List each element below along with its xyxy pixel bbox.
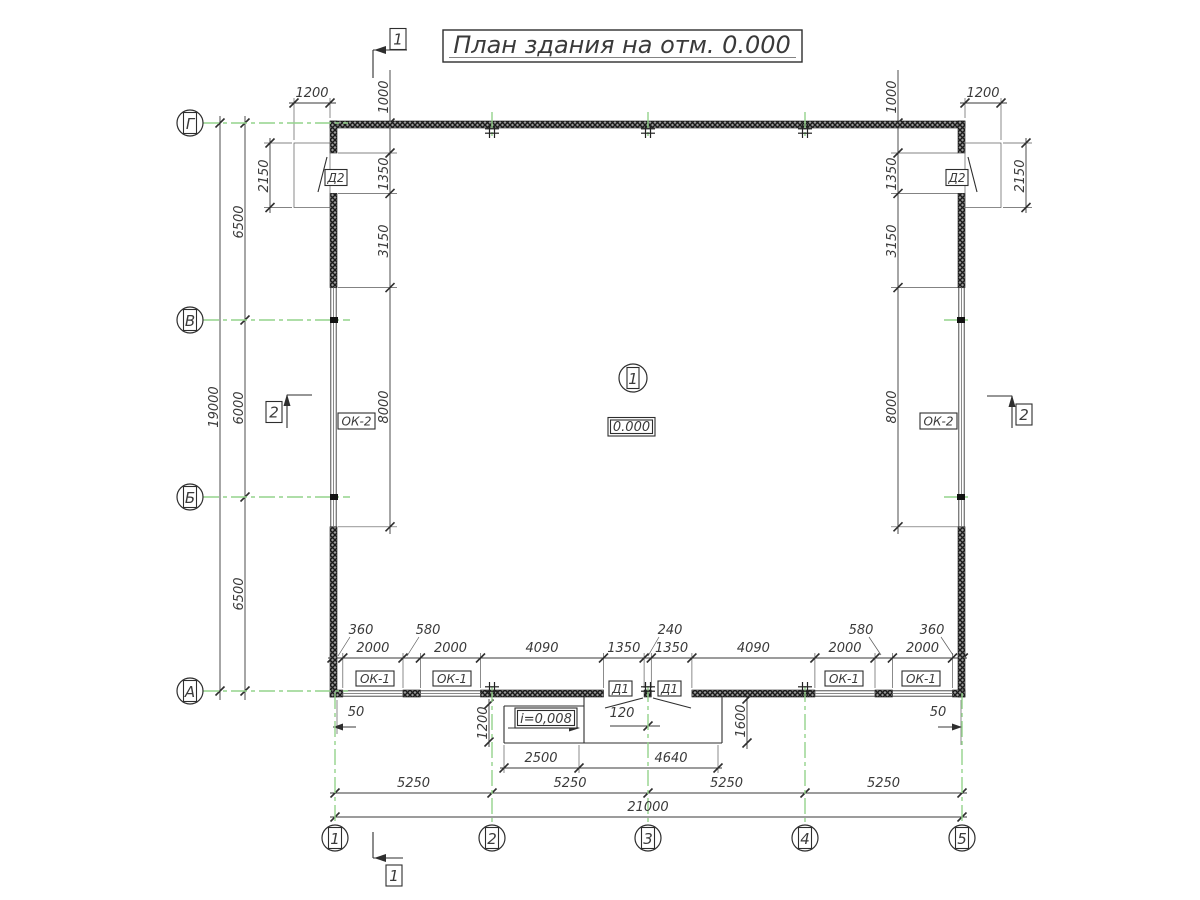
- door-tag: Д2: [326, 171, 344, 185]
- door-tag: Д2: [947, 171, 965, 185]
- building-walls: [330, 121, 965, 697]
- axis-grid: [203, 112, 968, 825]
- axis-letter: Б: [185, 489, 195, 507]
- dim-label: 8000: [377, 390, 392, 423]
- dim-label: 1200: [966, 86, 999, 101]
- dim-label: 2150: [257, 159, 272, 192]
- axis-bubble-col: 2: [479, 825, 505, 851]
- section-mark-2-right: 2: [987, 395, 1032, 428]
- axis-bubble-col: 1: [322, 825, 348, 851]
- axis-letter: В: [185, 312, 195, 330]
- dim-label: 2500: [524, 751, 557, 766]
- dim-label: 1000: [885, 80, 900, 113]
- dim-label: 50: [348, 705, 365, 720]
- column-marks: [330, 124, 965, 696]
- room-number: 1: [628, 370, 638, 388]
- window-tag: ОК-1: [829, 672, 859, 686]
- dim-label: 3150: [377, 224, 392, 257]
- dim-label: 3150: [885, 224, 900, 257]
- axis-bubble-row: Г: [177, 110, 203, 136]
- dim-label: 5250: [553, 776, 586, 791]
- dim-label: 1000: [377, 80, 392, 113]
- component-labels: ОК-2 ОК-2 ОК-1 ОК-1 ОК-1 ОК-1 Д2 Д2 Д1 Д…: [325, 170, 968, 729]
- axis-bubbles: Г В Б А 1 2 3 4 5: [177, 110, 975, 851]
- dim-label: 4090: [525, 641, 558, 656]
- dim-label: 240: [658, 623, 683, 638]
- dim-label: 5250: [397, 776, 430, 791]
- section-mark-2-left: 2: [266, 394, 312, 428]
- axis-bubble-col: 3: [635, 825, 661, 851]
- axis-number: 5: [957, 830, 967, 848]
- dim-label: 1600: [734, 704, 749, 737]
- floor-plan-canvas: 1200 1200 2150 2150 1000 1350 3150 8000 …: [0, 0, 1200, 900]
- dim-label: 4640: [654, 751, 687, 766]
- section-label: 2: [269, 404, 279, 422]
- dim-label: 1350: [885, 157, 900, 190]
- window-tag: ОК-1: [906, 672, 936, 686]
- dim-label: 5250: [710, 776, 743, 791]
- window-tag: ОК-2: [924, 415, 954, 429]
- axis-number: 3: [643, 830, 653, 848]
- dim-label: 6500: [232, 577, 247, 610]
- section-marks: 1 1 2 2: [266, 29, 1032, 887]
- elevation-mark: 0.000: [613, 420, 650, 435]
- section-label: 1: [393, 31, 403, 49]
- axis-bubble-col: 4: [792, 825, 818, 851]
- dim-label: 2000: [906, 641, 939, 656]
- door-tag: Д1: [660, 682, 678, 696]
- dim-label: 50: [930, 705, 947, 720]
- dim-label: 2000: [434, 641, 467, 656]
- dim-label: 2000: [828, 641, 861, 656]
- slope-label: i=0,008: [520, 712, 572, 727]
- axis-bubble-row: Б: [177, 484, 203, 510]
- door-tag: Д1: [611, 682, 629, 696]
- dim-label: 1350: [607, 641, 640, 656]
- axis-number: 1: [330, 830, 340, 848]
- dim-label: 360: [920, 623, 945, 638]
- dim-label: 6500: [232, 205, 247, 238]
- room-marker: 1 0.000: [608, 364, 655, 436]
- dim-label: 8000: [885, 390, 900, 423]
- dim-label: 580: [416, 623, 441, 638]
- dim-label: 1350: [655, 641, 688, 656]
- drawing-title: План здания на отм. 0.000: [453, 31, 791, 59]
- axis-bubble-row: В: [177, 307, 203, 333]
- dim-label: 580: [849, 623, 874, 638]
- window-tag: ОК-2: [342, 415, 372, 429]
- dim-label: 120: [610, 706, 635, 721]
- dim-label: 21000: [627, 800, 668, 815]
- drawing-sheet: 1200 1200 2150 2150 1000 1350 3150 8000 …: [0, 0, 1200, 900]
- title-block: План здания на отм. 0.000: [443, 30, 802, 62]
- dim-label: 19000: [207, 386, 222, 427]
- axis-bubble-row: А: [177, 678, 203, 704]
- dim-label: 1350: [377, 157, 392, 190]
- dim-label: 5250: [867, 776, 900, 791]
- dim-label: 2150: [1013, 159, 1028, 192]
- dim-label: 1200: [476, 706, 491, 739]
- section-label: 1: [389, 867, 399, 885]
- dim-label: 6000: [232, 391, 247, 424]
- axis-number: 4: [800, 830, 810, 848]
- axis-bubble-col: 5: [949, 825, 975, 851]
- window-tag: ОК-1: [360, 672, 390, 686]
- window-tag: ОК-1: [437, 672, 467, 686]
- axis-number: 2: [487, 830, 497, 848]
- dim-label: 4090: [737, 641, 770, 656]
- dim-label: 2000: [356, 641, 389, 656]
- dim-label: 360: [349, 623, 374, 638]
- section-label: 2: [1019, 406, 1029, 424]
- axis-letter: А: [184, 683, 195, 701]
- dim-label: 1200: [295, 86, 328, 101]
- section-mark-1-bottom: 1: [373, 832, 403, 886]
